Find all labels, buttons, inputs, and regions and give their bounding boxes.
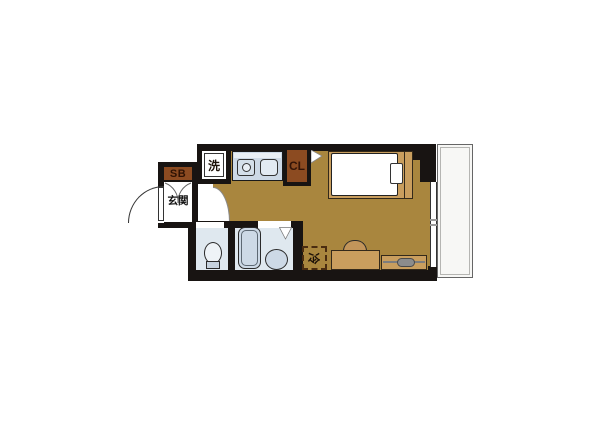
- toilet-tank: [206, 261, 220, 269]
- kitchen-counter-back-strip: [234, 153, 281, 158]
- floor-plan: SB 玄関 洗 CL 冷: [0, 0, 600, 425]
- toilet-bath-divider-wall: [228, 221, 235, 274]
- window-slider-mark-1: [430, 219, 437, 221]
- washer-label: 洗: [208, 157, 220, 174]
- desk: [331, 250, 380, 270]
- bed-mattress: [331, 153, 398, 196]
- bathroom-left-wall: [188, 221, 196, 276]
- closet-door-triangle: [311, 150, 323, 164]
- bed-pillow: [390, 163, 403, 184]
- refrigerator-space: 冷: [302, 246, 327, 270]
- refrigerator-label: 冷: [306, 252, 323, 264]
- hallway-floor: [196, 183, 213, 222]
- bath-door-triangle: [279, 227, 292, 240]
- tv: [397, 258, 415, 267]
- washer-box-frame: 洗: [204, 153, 224, 177]
- kitchen-sink: [260, 159, 278, 176]
- entrance-label: 玄関: [168, 193, 189, 208]
- shoe-box: SB: [164, 167, 192, 182]
- bottom-wall: [188, 270, 437, 281]
- washbasin: [265, 249, 288, 270]
- bathtub-inner-line: [241, 230, 258, 266]
- closet-label: CL: [289, 159, 305, 173]
- shoe-box-label: SB: [170, 168, 186, 180]
- kitchen-burner-circle: [242, 163, 251, 172]
- toilet-door-gap: [196, 222, 224, 228]
- corner-wall-vertical: [420, 144, 436, 182]
- bed-frame-line: [404, 151, 405, 199]
- balcony-inner-line: [440, 147, 470, 275]
- window-slider-mark-2: [430, 224, 437, 226]
- closet: CL: [287, 150, 307, 182]
- entrance-label-box: 玄関: [164, 193, 192, 207]
